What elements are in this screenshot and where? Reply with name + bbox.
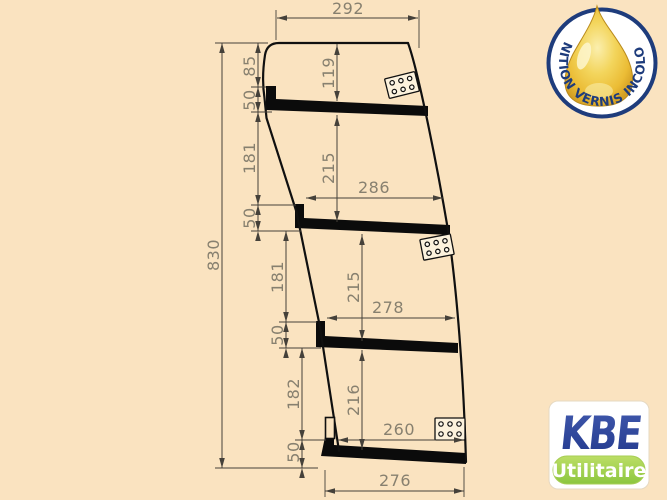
utilitaire-label: Utilitaire [552, 460, 647, 482]
dim-sec4-lip: 50 [284, 441, 303, 462]
shelf-3 [316, 321, 458, 353]
technical-drawing: 292 830 85 50 119 181 50 215 286 181 50 … [0, 0, 667, 500]
dim-sec3-interior: 215 [344, 271, 363, 303]
dim-sec4-gap: 182 [284, 378, 303, 410]
shelf-4-lip [326, 418, 335, 439]
dim-sec1-lip: 50 [240, 89, 259, 110]
dim-bottom-width: 276 [379, 471, 411, 490]
dim-sec3-lip: 50 [268, 324, 287, 345]
dim-sec4-width: 260 [383, 420, 415, 439]
dim-sec2-interior: 215 [319, 152, 338, 184]
dim-sec3-width: 278 [372, 298, 404, 317]
dim-top-width: 292 [332, 0, 364, 18]
dim-total-height: 830 [204, 239, 223, 271]
dim-sec2-gap: 181 [240, 142, 259, 174]
hinge-plate-top [385, 72, 420, 99]
hinge-plate-middle [420, 234, 454, 261]
hinge-plate-bottom [435, 418, 465, 440]
dim-sec2-width: 286 [358, 178, 390, 197]
shelf-2 [295, 204, 450, 235]
dim-sec2-lip: 50 [240, 207, 259, 228]
brand-text: KBE [558, 406, 644, 460]
dim-sec1-interior: 119 [319, 57, 338, 89]
dim-sec1-offset: 85 [240, 55, 259, 76]
kbe-logo: KBE Utilitaire [549, 401, 649, 489]
page: 292 830 85 50 119 181 50 215 286 181 50 … [0, 0, 667, 500]
dim-sec4-interior: 216 [344, 384, 363, 416]
dim-sec3-gap: 181 [268, 261, 287, 293]
